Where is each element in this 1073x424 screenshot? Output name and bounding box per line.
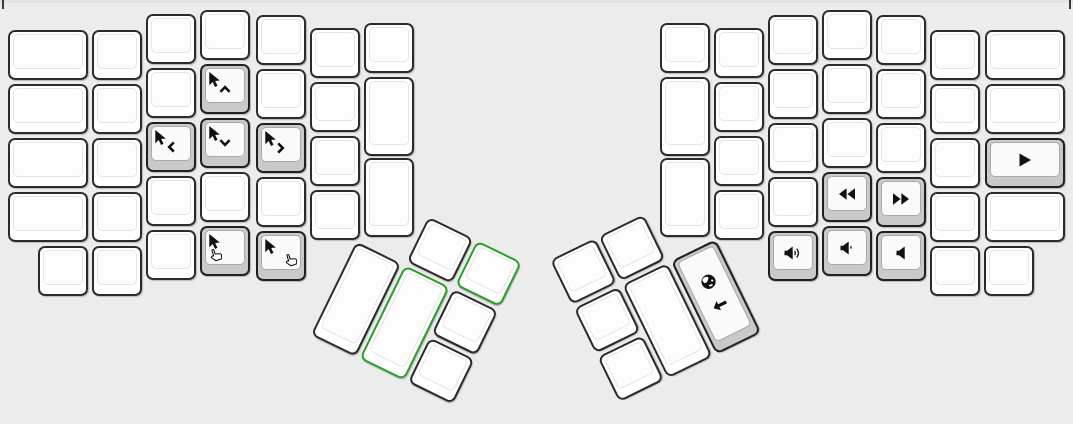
keycap	[827, 176, 867, 211]
keycap	[719, 194, 759, 229]
keycap	[315, 32, 355, 67]
fast-forward-icon	[892, 192, 910, 205]
keycap	[604, 341, 655, 390]
keycap	[881, 73, 921, 108]
keycap	[205, 68, 245, 103]
globe-icon	[698, 271, 719, 292]
keycap	[369, 27, 409, 62]
blank-key[interactable]	[92, 84, 142, 134]
mouse-left-key[interactable]	[146, 122, 196, 172]
keycap	[151, 126, 191, 161]
keycap	[13, 142, 83, 177]
blank-key[interactable]	[660, 77, 710, 156]
keycap	[719, 140, 759, 175]
cursor-icon	[264, 238, 277, 255]
keycap	[665, 81, 705, 145]
keycap	[315, 86, 355, 121]
blank-key[interactable]	[930, 84, 980, 134]
keycap	[151, 18, 191, 53]
blank-key[interactable]	[822, 118, 872, 168]
blank-key[interactable]	[310, 28, 360, 78]
keycap	[719, 32, 759, 67]
blank-key[interactable]	[256, 177, 306, 227]
keycap	[665, 27, 705, 62]
keycap	[881, 127, 921, 162]
keycap	[719, 86, 759, 121]
keycap	[827, 230, 867, 265]
keycap	[773, 181, 813, 216]
keycap	[464, 246, 515, 295]
blank-key[interactable]	[768, 15, 818, 65]
blank-key[interactable]	[146, 68, 196, 118]
blank-key[interactable]	[8, 30, 88, 80]
blank-key[interactable]	[364, 77, 414, 156]
keycap	[315, 194, 355, 229]
keycap	[369, 81, 409, 145]
mute-icon	[896, 245, 907, 260]
keycap	[315, 140, 355, 175]
keycap	[13, 88, 83, 123]
volume-down-key[interactable]	[822, 226, 872, 276]
blank-key[interactable]	[146, 176, 196, 226]
blank-key[interactable]	[984, 246, 1034, 296]
keycap	[151, 180, 191, 215]
blank-key[interactable]	[256, 69, 306, 119]
keycap	[261, 235, 301, 270]
fast-forward-key[interactable]	[876, 177, 926, 227]
volume-up-icon	[784, 245, 803, 260]
blank-key[interactable]	[146, 230, 196, 280]
blank-key[interactable]	[822, 64, 872, 114]
keycap	[43, 250, 83, 285]
hand-icon	[284, 253, 297, 267]
keycap	[97, 34, 137, 69]
keycap	[827, 122, 867, 157]
keycap	[417, 343, 468, 392]
keycap	[13, 196, 83, 231]
keycap	[773, 19, 813, 54]
chevron-down-icon	[218, 137, 232, 149]
keycap	[205, 14, 245, 49]
keycap	[97, 142, 137, 177]
blank-key[interactable]	[876, 123, 926, 173]
blank-key[interactable]	[768, 177, 818, 227]
blank-key[interactable]	[8, 138, 88, 188]
blank-key[interactable]	[92, 138, 142, 188]
blank-key[interactable]	[660, 23, 710, 73]
volume-up-key[interactable]	[768, 231, 818, 281]
blank-key[interactable]	[822, 10, 872, 60]
keycap	[151, 72, 191, 107]
keycap	[580, 292, 631, 341]
blank-key[interactable]	[310, 82, 360, 132]
keycap	[989, 250, 1029, 285]
blank-key[interactable]	[8, 192, 88, 242]
keycap	[441, 295, 492, 344]
blank-key[interactable]	[92, 30, 142, 80]
keycap	[261, 181, 301, 216]
blank-key[interactable]	[714, 190, 764, 240]
mouse-up-key[interactable]	[200, 64, 250, 114]
play-pause-key[interactable]	[985, 138, 1065, 188]
keyboard-layout-canvas	[0, 0, 1073, 424]
keycap	[205, 122, 245, 157]
blank-key[interactable]	[985, 192, 1065, 242]
blank-key[interactable]	[92, 192, 142, 242]
blank-key[interactable]	[930, 138, 980, 188]
blank-key[interactable]	[92, 246, 142, 296]
blank-key[interactable]	[8, 84, 88, 134]
keycap	[990, 88, 1060, 123]
keycap	[261, 19, 301, 54]
keycap	[881, 181, 921, 216]
keycap	[990, 142, 1060, 177]
blank-key[interactable]	[768, 69, 818, 119]
keycap	[935, 196, 975, 231]
blank-key[interactable]	[38, 246, 88, 296]
rewind-icon	[838, 187, 856, 200]
blank-key[interactable]	[146, 14, 196, 64]
rewind-key[interactable]	[822, 172, 872, 222]
keycap	[881, 19, 921, 54]
keycap	[13, 34, 83, 69]
hand-icon	[209, 248, 222, 262]
keycap	[990, 34, 1060, 69]
mouse-right-key[interactable]	[256, 123, 306, 173]
keycap	[773, 127, 813, 162]
blank-key[interactable]	[985, 84, 1065, 134]
blank-key[interactable]	[930, 192, 980, 242]
keycap	[827, 68, 867, 103]
keycap	[935, 88, 975, 123]
keycap	[97, 250, 137, 285]
keycap	[151, 234, 191, 269]
blank-key[interactable]	[310, 190, 360, 240]
blank-key[interactable]	[768, 123, 818, 173]
blank-key[interactable]	[310, 136, 360, 186]
panel-edge-right	[1069, 0, 1071, 9]
blank-key[interactable]	[714, 28, 764, 78]
mouse-down-key[interactable]	[200, 118, 250, 168]
blank-key[interactable]	[985, 30, 1065, 80]
chevron-right-icon	[275, 141, 287, 155]
play-icon	[1018, 152, 1032, 167]
chevron-left-icon	[165, 140, 177, 154]
keycap	[416, 222, 467, 271]
keycap	[827, 14, 867, 49]
volume-down-icon	[840, 240, 855, 255]
blank-key[interactable]	[256, 15, 306, 65]
blank-key[interactable]	[930, 246, 980, 296]
keycap	[556, 244, 607, 293]
keycap	[261, 73, 301, 108]
mouse-button2-key[interactable]	[256, 231, 306, 281]
keycap	[97, 88, 137, 123]
mouse-button1-key[interactable]	[200, 226, 250, 276]
keycap	[935, 250, 975, 285]
blank-key[interactable]	[364, 23, 414, 73]
blank-key[interactable]	[876, 15, 926, 65]
panel-edge-left	[2, 0, 4, 9]
keycap	[935, 34, 975, 69]
keycap	[935, 142, 975, 177]
keycap	[261, 127, 301, 162]
blank-key[interactable]	[200, 10, 250, 60]
keycap	[205, 230, 245, 265]
chevron-up-icon	[218, 83, 232, 95]
keycap	[881, 235, 921, 270]
blank-key[interactable]	[200, 172, 250, 222]
keycap	[990, 196, 1060, 231]
keycap	[205, 176, 245, 211]
keycap	[605, 220, 656, 269]
blank-key[interactable]	[930, 30, 980, 80]
keycap	[97, 196, 137, 231]
top-border-strip	[0, 0, 1073, 3]
blank-key[interactable]	[714, 136, 764, 186]
blank-key[interactable]	[876, 69, 926, 119]
keycap	[773, 235, 813, 270]
blank-key[interactable]	[714, 82, 764, 132]
keycap	[773, 73, 813, 108]
arrow-left-icon	[710, 295, 730, 314]
mute-key[interactable]	[876, 231, 926, 281]
